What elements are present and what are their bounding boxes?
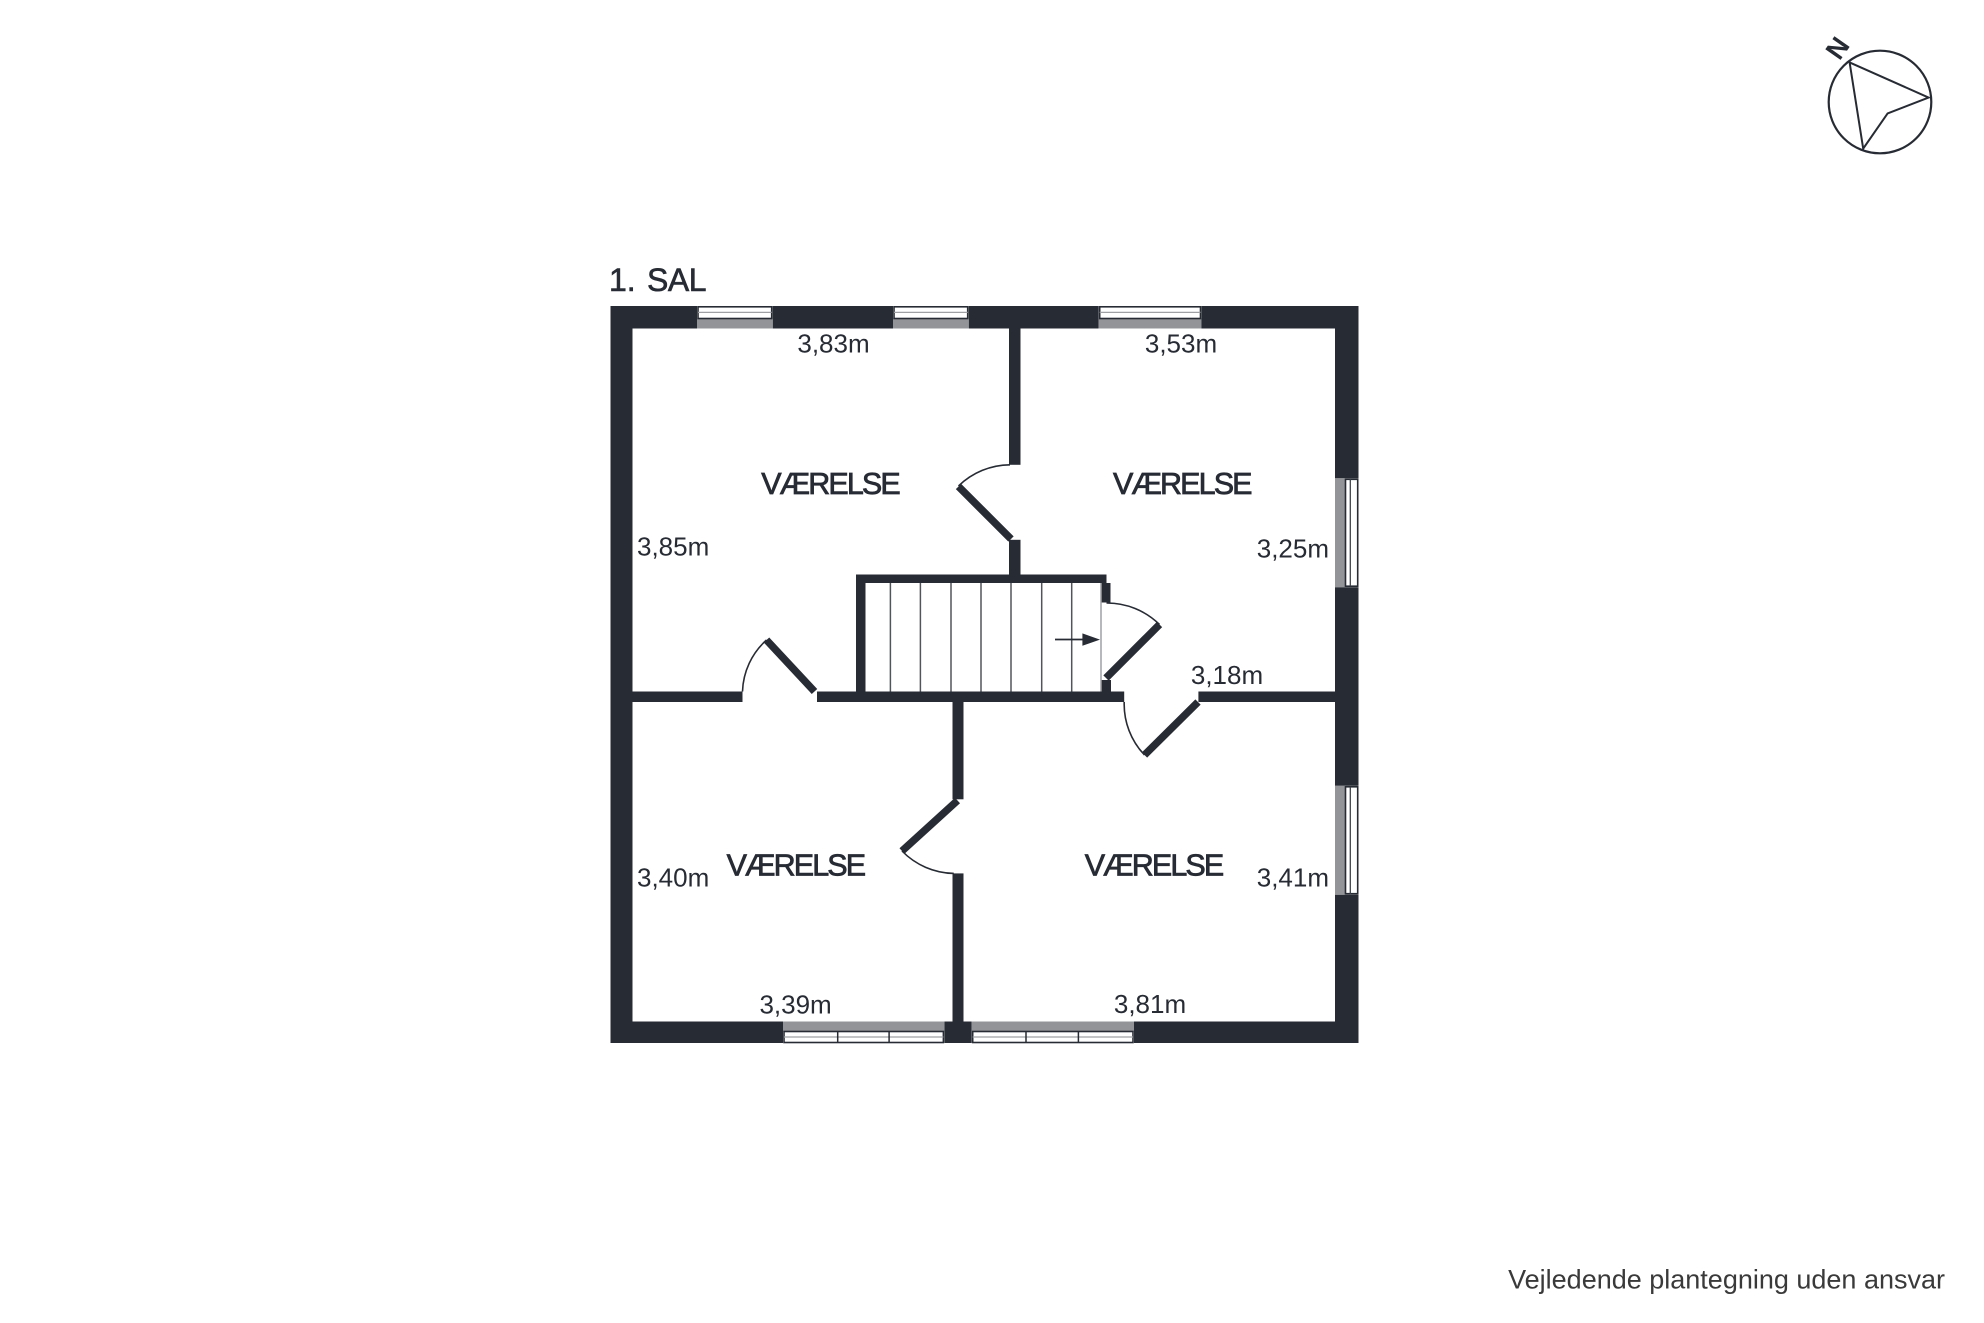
svg-text:3,18m: 3,18m <box>1191 660 1263 690</box>
svg-text:Vejledende plantegning uden an: Vejledende plantegning uden ansvar <box>1508 1265 1945 1295</box>
svg-text:3,81m: 3,81m <box>1114 989 1186 1019</box>
svg-text:3,83m: 3,83m <box>797 329 869 359</box>
svg-text:3,53m: 3,53m <box>1145 329 1217 359</box>
svg-text:3,85m: 3,85m <box>637 532 709 562</box>
svg-text:VÆRELSE: VÆRELSE <box>1113 467 1252 501</box>
svg-text:1.: 1. <box>609 262 636 298</box>
svg-text:SAL: SAL <box>647 262 706 298</box>
svg-text:3,40m: 3,40m <box>637 863 709 893</box>
svg-text:VÆRELSE: VÆRELSE <box>727 848 866 882</box>
svg-text:3,25m: 3,25m <box>1257 534 1329 564</box>
svg-text:3,39m: 3,39m <box>759 990 831 1020</box>
svg-text:VÆRELSE: VÆRELSE <box>761 467 900 501</box>
svg-text:3,41m: 3,41m <box>1257 863 1329 893</box>
svg-text:VÆRELSE: VÆRELSE <box>1085 848 1224 882</box>
